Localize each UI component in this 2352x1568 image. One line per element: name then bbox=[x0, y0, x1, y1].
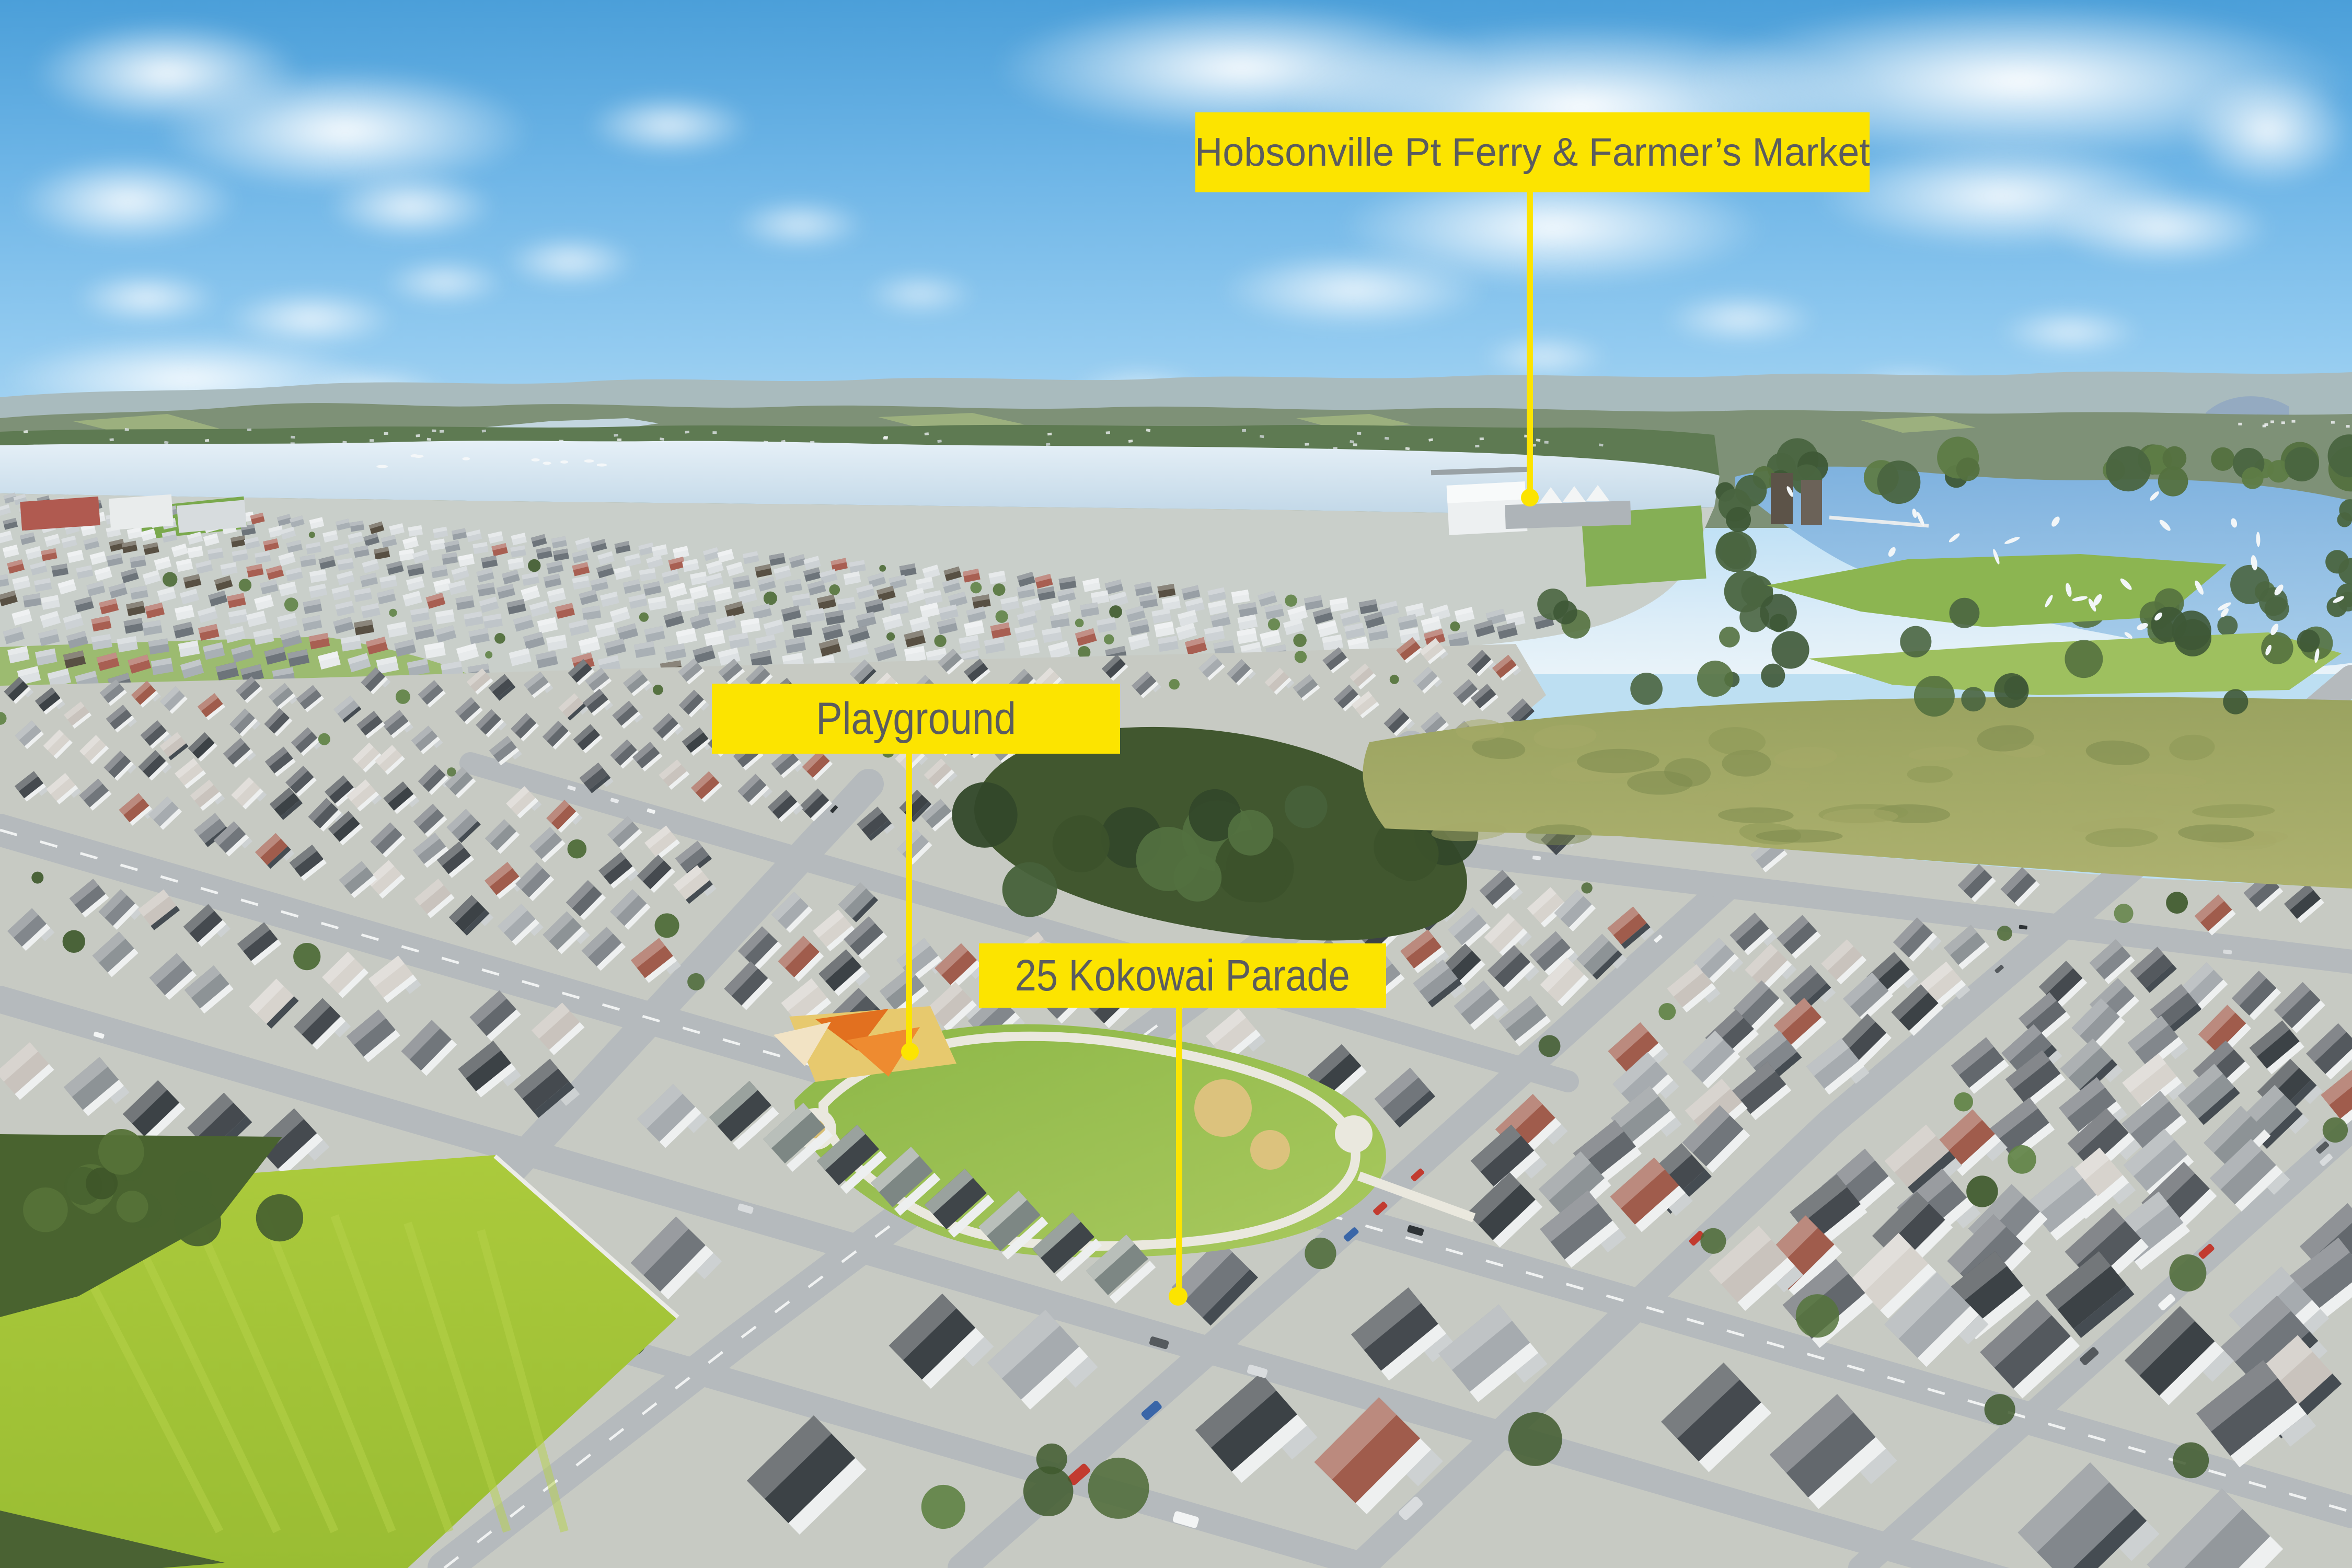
tower bbox=[1801, 480, 1822, 525]
callout-property-line bbox=[1176, 1008, 1182, 1295]
carpark bbox=[1505, 501, 1631, 529]
callout-playground: Playground bbox=[712, 684, 1120, 754]
callout-property-dot bbox=[1169, 1287, 1187, 1306]
tower bbox=[1771, 473, 1793, 524]
sand-circle bbox=[1250, 1130, 1290, 1170]
aerial-photo: Hobsonville Pt Ferry & Farmer’s Market P… bbox=[0, 0, 2352, 1568]
callout-ferry-market: Hobsonville Pt Ferry & Farmer’s Market bbox=[1195, 112, 1870, 192]
aerial-landscape bbox=[0, 0, 2352, 1568]
callout-playground-line bbox=[906, 754, 912, 1051]
callout-playground-label: Playground bbox=[816, 693, 1016, 745]
callout-ferry-market-line bbox=[1527, 192, 1533, 497]
sand-circle bbox=[1194, 1079, 1252, 1137]
callout-ferry-market-dot bbox=[1521, 489, 1539, 506]
callout-property-label: 25 Kokowai Parade bbox=[1015, 950, 1350, 1001]
callout-playground-dot bbox=[901, 1043, 919, 1060]
callout-property: 25 Kokowai Parade bbox=[979, 943, 1386, 1008]
callout-ferry-market-label: Hobsonville Pt Ferry & Farmer’s Market bbox=[1195, 130, 1870, 175]
